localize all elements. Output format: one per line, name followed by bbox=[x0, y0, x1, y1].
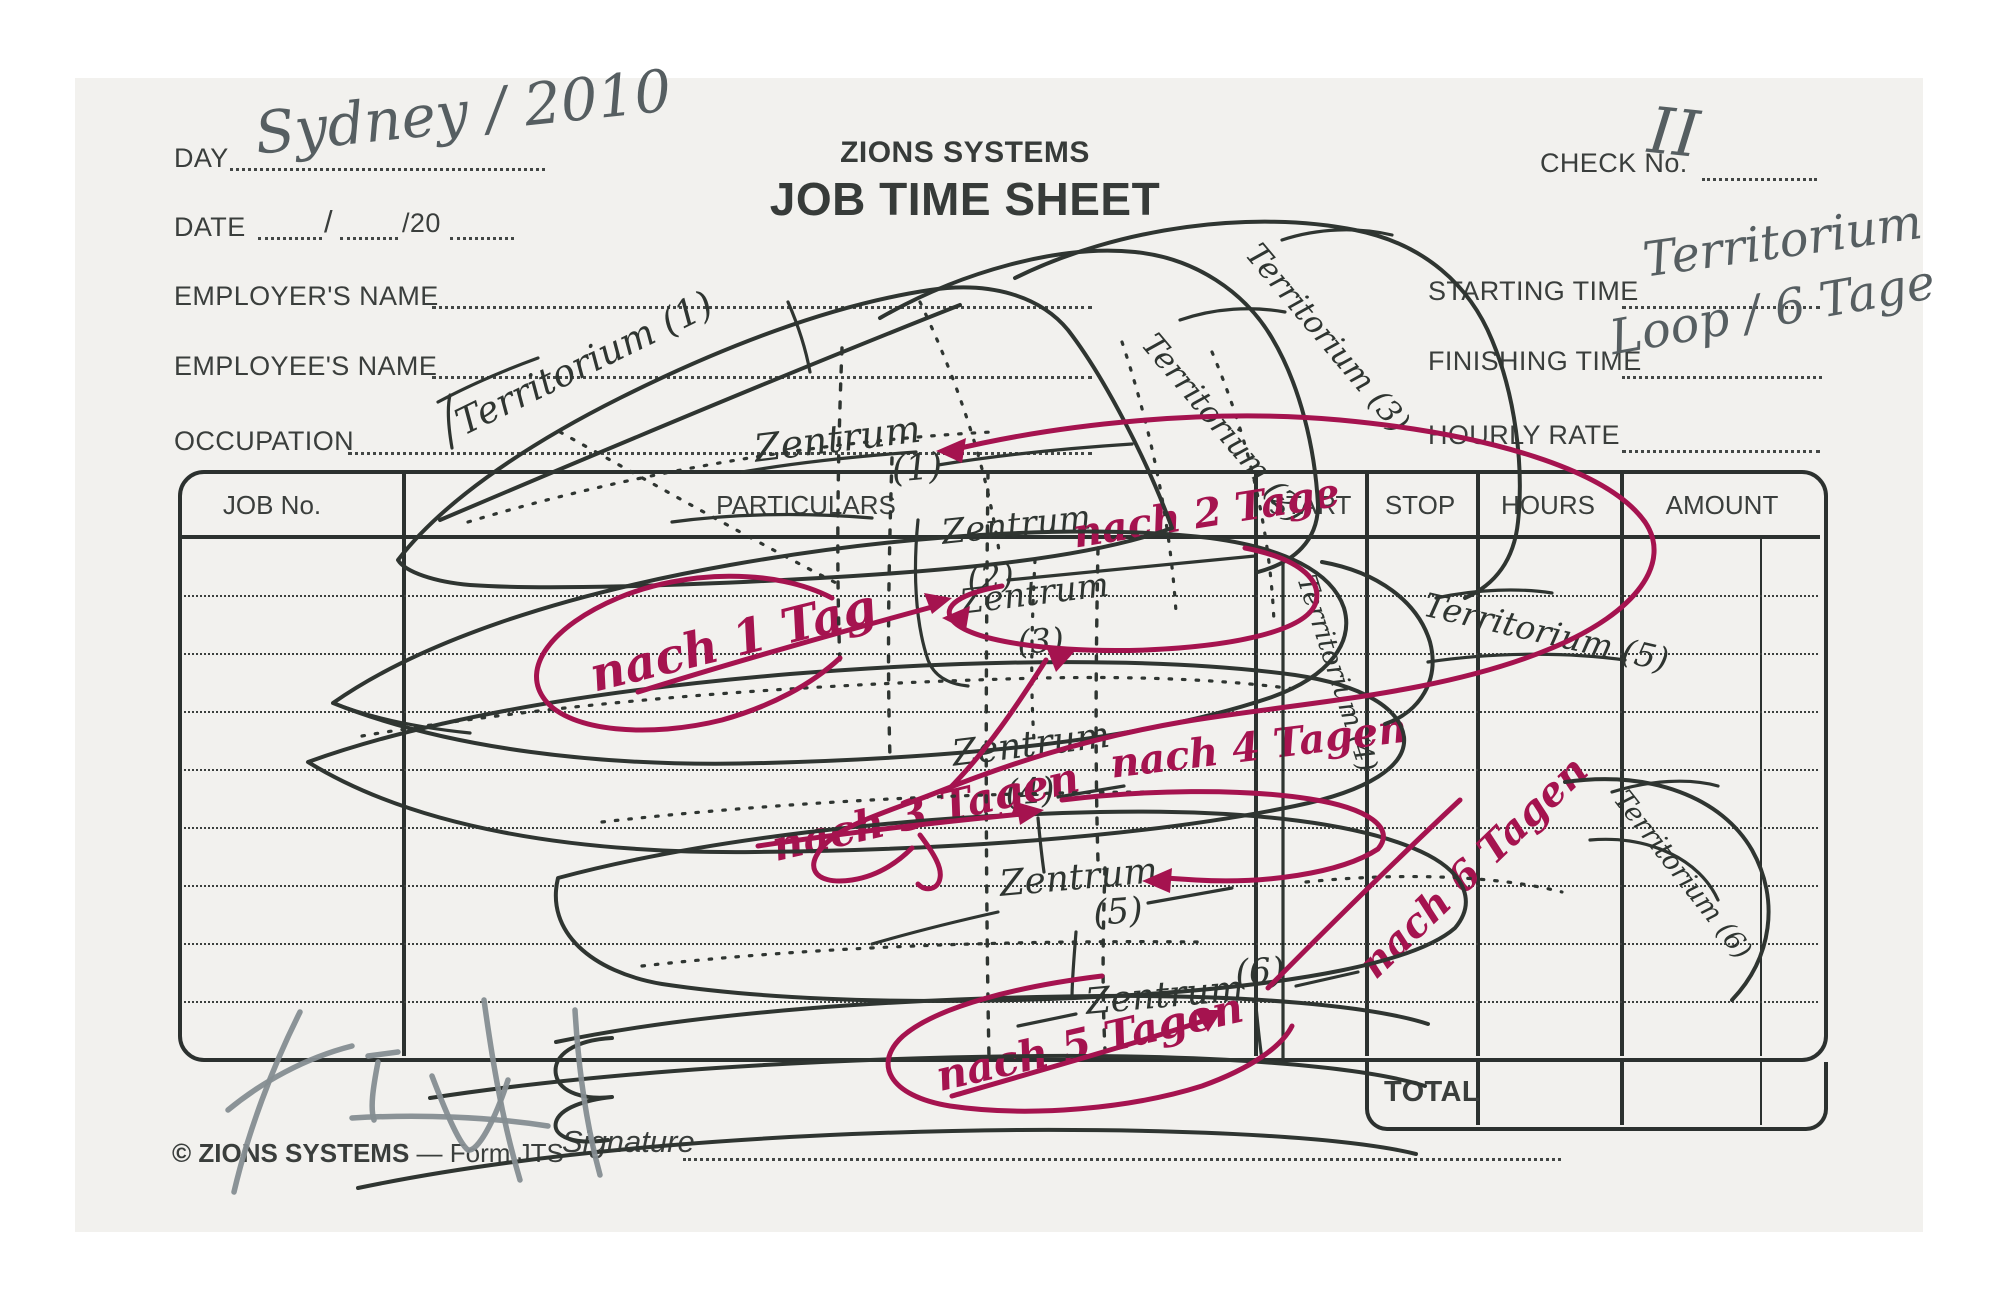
handwriting-territorium-1: Territorium (1) bbox=[450, 285, 719, 443]
handwriting-territorium-5: Territorium (5) bbox=[1420, 588, 1672, 678]
handwriting-nach-1-tag: nach 1 Tag bbox=[585, 581, 881, 701]
handwriting-zentrum-6-num: (6) bbox=[1234, 953, 1286, 993]
handwriting-territorium-6: Territorium (6) bbox=[1608, 786, 1756, 965]
handwriting-day-value: Sydney / 2010 bbox=[252, 60, 674, 164]
handwriting-zentrum-3-num: (3) bbox=[1016, 623, 1065, 661]
handwriting-territorium-3: Territorium (3) bbox=[1239, 238, 1415, 439]
scanned-job-time-sheet: { "form": { "brand": "ZIONS SYSTEMS", "t… bbox=[0, 0, 2000, 1306]
handwriting-zentrum-5-num: (5) bbox=[1092, 893, 1144, 933]
handwriting-nach-4-tagen: nach 4 Tagen bbox=[1108, 708, 1409, 786]
handwriting-check-no-value: II bbox=[1645, 98, 1702, 170]
handwriting-nach-3-tagen: nach 3 Tagen bbox=[768, 755, 1083, 868]
handwriting-nach-6-tagen: nach 6 Tagen bbox=[1352, 749, 1596, 987]
handwriting-zentrum-2: Zentrum bbox=[940, 500, 1093, 551]
handwriting-layer: Sydney / 2010IITerritoriumLoop / 6 TageT… bbox=[0, 0, 2000, 1306]
handwriting-zentrum-1-num: (1) bbox=[890, 448, 944, 490]
handwriting-nach-2-tage: nach 2 Tage bbox=[1070, 472, 1343, 556]
